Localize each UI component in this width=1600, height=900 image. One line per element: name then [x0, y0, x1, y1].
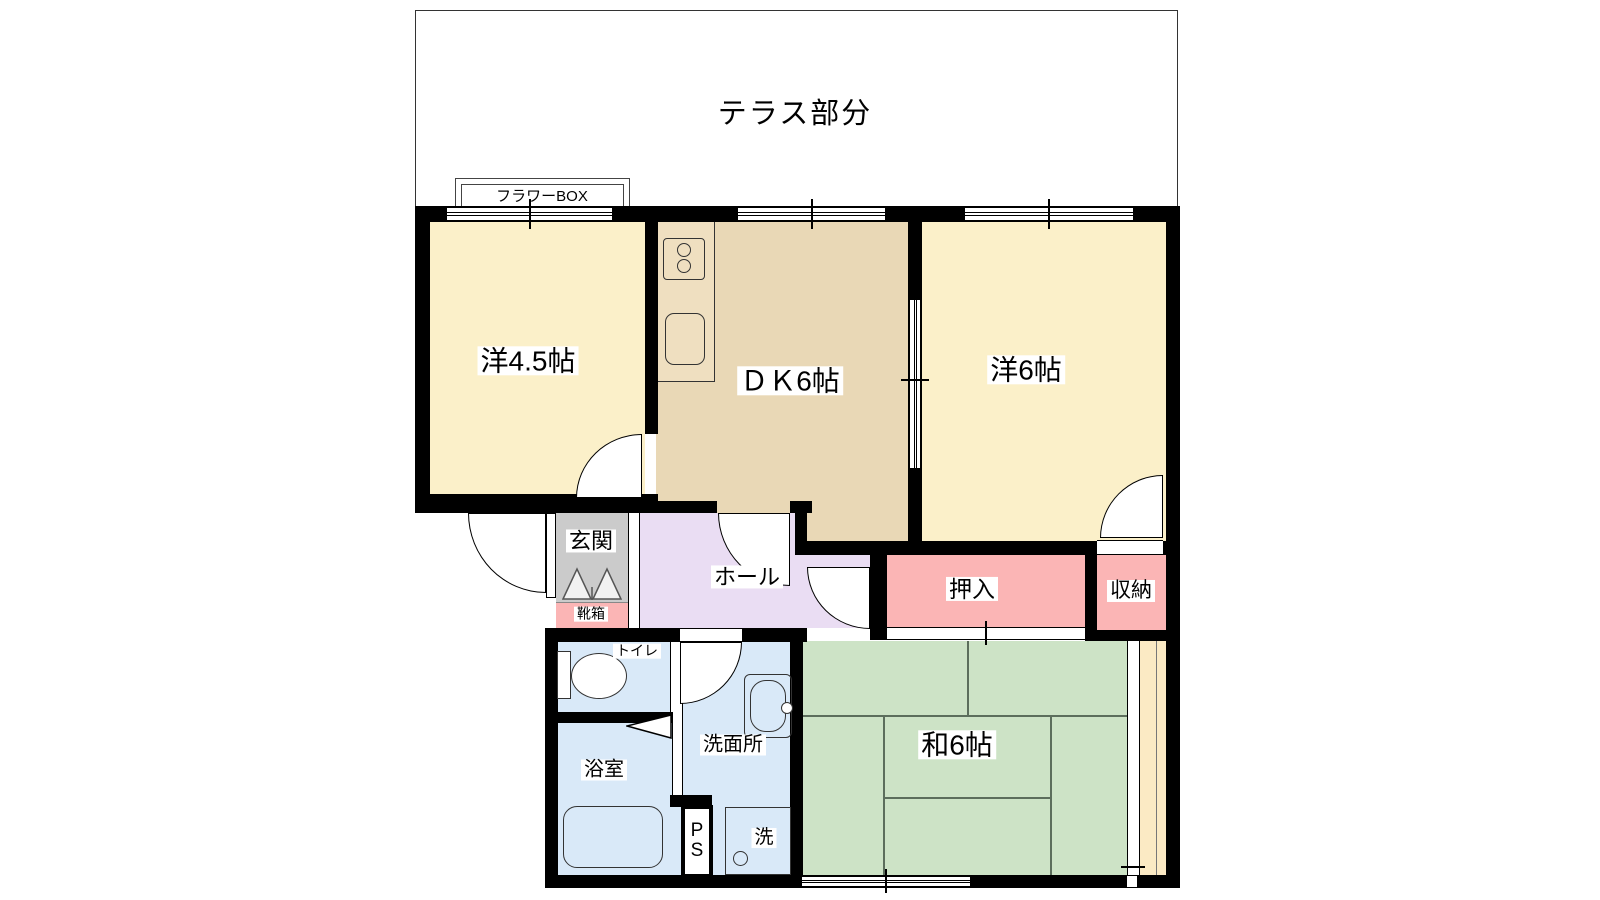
window-tick	[901, 379, 929, 381]
wall	[645, 222, 658, 434]
room-label-dk: ＤＫ6帖	[737, 366, 843, 395]
toilet-bowl-icon	[571, 653, 627, 699]
tatami-line	[803, 715, 1127, 717]
wall	[1163, 541, 1180, 555]
wall	[545, 628, 680, 642]
room-label-hall: ホール	[711, 565, 783, 588]
room-label-toilet: トイレ	[613, 644, 661, 659]
bath-folding-door	[672, 712, 683, 795]
entrance-door-swing	[468, 513, 546, 593]
tatami-line	[1050, 715, 1052, 875]
wall	[790, 640, 803, 875]
stove-burner-icon	[677, 259, 691, 273]
japanese-room-slider	[1127, 641, 1140, 875]
room-label-storage: 収納	[1107, 580, 1155, 602]
room-label-genkan: 玄関	[566, 529, 616, 552]
window-tick	[529, 199, 531, 229]
tatami-line	[883, 797, 1050, 799]
genkan-step-icon	[562, 567, 622, 600]
wall	[545, 875, 802, 888]
room-label-oshiire: 押入	[946, 577, 998, 601]
room-label-pipe-space: P S	[688, 821, 707, 861]
wall	[885, 206, 965, 222]
wall	[795, 541, 1097, 555]
kitchen-sink-icon	[665, 313, 705, 365]
wall	[970, 875, 1180, 888]
room-label-washer: 洗	[751, 828, 776, 848]
room-label-washroom: 洗面所	[700, 735, 766, 756]
room-label-shoebox: 靴箱	[574, 607, 608, 622]
wall	[908, 468, 922, 541]
washer-drain-icon	[733, 851, 748, 866]
bathtub-icon	[563, 806, 663, 868]
toilet-tank-icon	[557, 651, 571, 699]
wall	[658, 501, 717, 513]
genkan-hall-partition	[628, 513, 640, 628]
window-tick	[1048, 199, 1050, 229]
window	[908, 300, 922, 468]
engawa-line	[1156, 641, 1157, 875]
storage-threshold	[1097, 540, 1163, 555]
wall	[612, 206, 738, 222]
room-label-japanese-6: 和6帖	[918, 730, 996, 759]
entrance-door-leaf	[546, 513, 556, 598]
stove-burner-icon	[677, 243, 691, 257]
room-label-western-6: 洋6帖	[987, 355, 1065, 384]
window-tick	[985, 621, 987, 645]
window-tick	[1121, 866, 1145, 868]
engawa-strip	[1140, 641, 1166, 875]
floor-plan: テラス部分 フラワーBOX	[0, 0, 1600, 900]
wall	[1085, 541, 1097, 640]
slider-end-cap	[1126, 876, 1138, 887]
room-label-bathroom: 浴室	[581, 760, 627, 781]
tatami-line	[967, 641, 969, 716]
washroom-threshold	[680, 628, 742, 642]
faucet-icon	[781, 702, 793, 714]
wall	[1085, 630, 1180, 641]
room-label-western-4-5: 洋4.5帖	[478, 346, 579, 375]
flower-box-label: フラワーBOX	[493, 189, 591, 205]
wall	[870, 541, 887, 640]
bath-door-swing-icon	[626, 714, 672, 740]
window-tick	[885, 869, 887, 893]
wall	[415, 206, 430, 513]
terrace-label: テラス部分	[715, 99, 875, 129]
wall	[908, 222, 922, 300]
tatami-line	[883, 715, 885, 875]
window-tick	[811, 199, 813, 229]
